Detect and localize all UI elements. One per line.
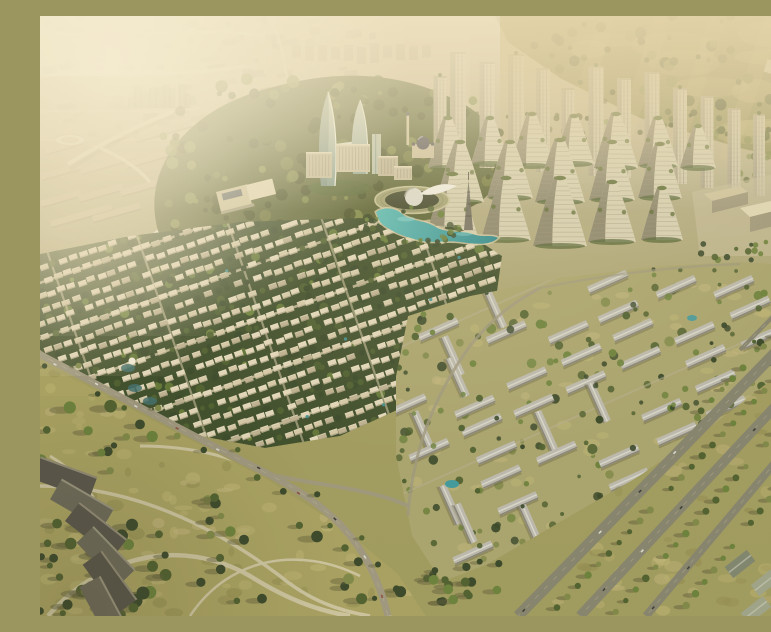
aerial-render-figure <box>40 16 771 616</box>
aerial-masterplan-render <box>40 16 771 616</box>
atmosphere-overlays <box>40 16 771 616</box>
